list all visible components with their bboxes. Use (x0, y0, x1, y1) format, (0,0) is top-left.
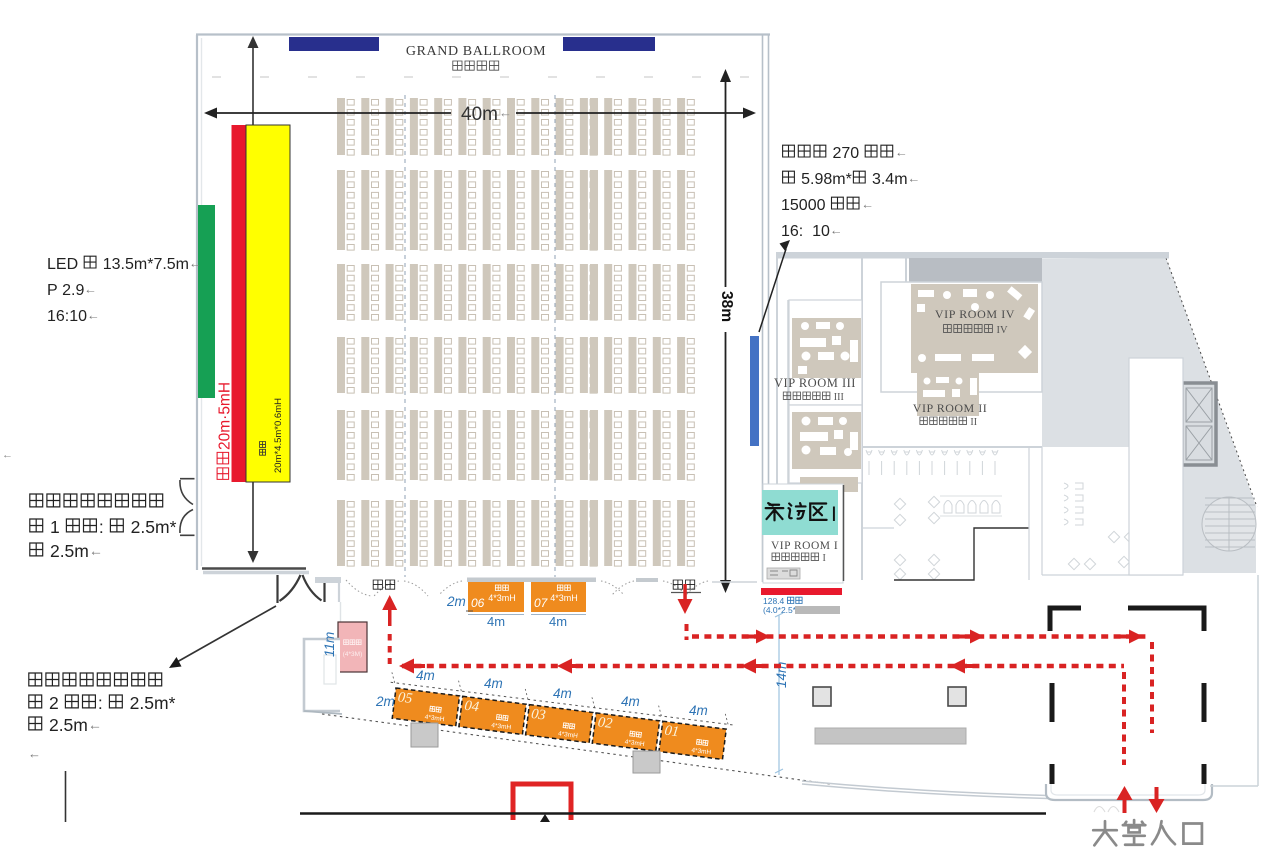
svg-text:2.5m*: 2.5m* (125, 693, 176, 713)
svg-text:5.98m*: 5.98m* (797, 171, 852, 188)
svg-text:270: 270 (828, 145, 864, 162)
svg-text:GRAND BALLROOM: GRAND BALLROOM (406, 44, 546, 59)
svg-text:2m: 2m (375, 694, 395, 709)
svg-text:40m: 40m (461, 104, 498, 125)
svg-text:4m: 4m (689, 703, 708, 718)
svg-text:P 2.9: P 2.9 (47, 282, 84, 299)
svg-text:II: II (968, 417, 977, 428)
svg-text:4m: 4m (484, 676, 503, 691)
svg-text:4*3mH: 4*3mH (488, 593, 516, 603)
svg-text:2: 2 (44, 693, 63, 713)
svg-text:←: ← (28, 746, 41, 761)
svg-text:4*3mH: 4*3mH (550, 593, 578, 603)
svg-text:4m: 4m (549, 614, 567, 629)
svg-text:38m: 38m (718, 291, 735, 322)
svg-text:2m: 2m (446, 594, 466, 609)
svg-text:VIP ROOM II: VIP ROOM II (913, 401, 987, 415)
svg-text:VIP ROOM I: VIP ROOM I (771, 540, 838, 552)
svg-text:4m: 4m (416, 668, 435, 683)
svg-text:←: ← (2, 449, 13, 461)
svg-text:2.5m: 2.5m (45, 541, 89, 561)
svg-text:←: ← (88, 717, 102, 733)
svg-text:III: III (831, 392, 844, 403)
svg-text:20m*4.5m*0.6mH: 20m*4.5m*0.6mH (273, 398, 284, 473)
svg-text:←: ← (830, 223, 843, 238)
svg-text:I: I (820, 553, 826, 564)
svg-text:4m: 4m (487, 614, 505, 629)
svg-text:01: 01 (664, 723, 680, 741)
svg-text:03: 03 (530, 706, 546, 724)
svg-text:4m: 4m (621, 694, 640, 709)
svg-text:16: 10: 16: 10 (781, 223, 830, 240)
svg-text:(4.0*2.5**: (4.0*2.5** (763, 605, 800, 615)
svg-text:15000: 15000 (781, 197, 830, 214)
svg-text:←: ← (895, 145, 908, 160)
svg-text:I: I (831, 503, 837, 526)
svg-text:←: ← (87, 308, 100, 323)
svg-text:13.5m*7.5m: 13.5m*7.5m (98, 256, 189, 273)
svg-text:IV: IV (994, 325, 1008, 336)
svg-text:LED: LED (47, 256, 83, 273)
svg-text:2.5m: 2.5m (44, 715, 88, 735)
svg-text:(4*3M): (4*3M) (343, 651, 363, 658)
svg-text:16:10: 16:10 (47, 308, 87, 325)
svg-text:02: 02 (597, 714, 613, 732)
svg-text::: : (99, 517, 109, 537)
svg-text:←: ← (84, 282, 97, 297)
svg-text:4m: 4m (553, 686, 572, 701)
svg-text:←: ← (861, 197, 874, 212)
svg-text:11m: 11m (322, 632, 337, 657)
svg-text:1: 1 (45, 517, 64, 537)
svg-text:07: 07 (534, 596, 549, 610)
svg-text:05: 05 (397, 689, 413, 707)
svg-text:←: ← (908, 171, 921, 186)
svg-text:20m·5mH: 20m·5mH (217, 382, 234, 450)
svg-text:VIP ROOM IV: VIP ROOM IV (935, 307, 1015, 321)
svg-text:06: 06 (471, 596, 485, 610)
svg-text::: : (98, 693, 108, 713)
svg-text:←: ← (499, 105, 512, 120)
svg-text:VIP ROOM III: VIP ROOM III (774, 376, 856, 390)
svg-text:←: ← (89, 543, 103, 559)
svg-text:04: 04 (464, 698, 480, 716)
svg-text:2.5m*: 2.5m* (126, 517, 177, 537)
svg-text:3.4m: 3.4m (868, 171, 908, 188)
svg-text:←: ← (189, 256, 202, 271)
